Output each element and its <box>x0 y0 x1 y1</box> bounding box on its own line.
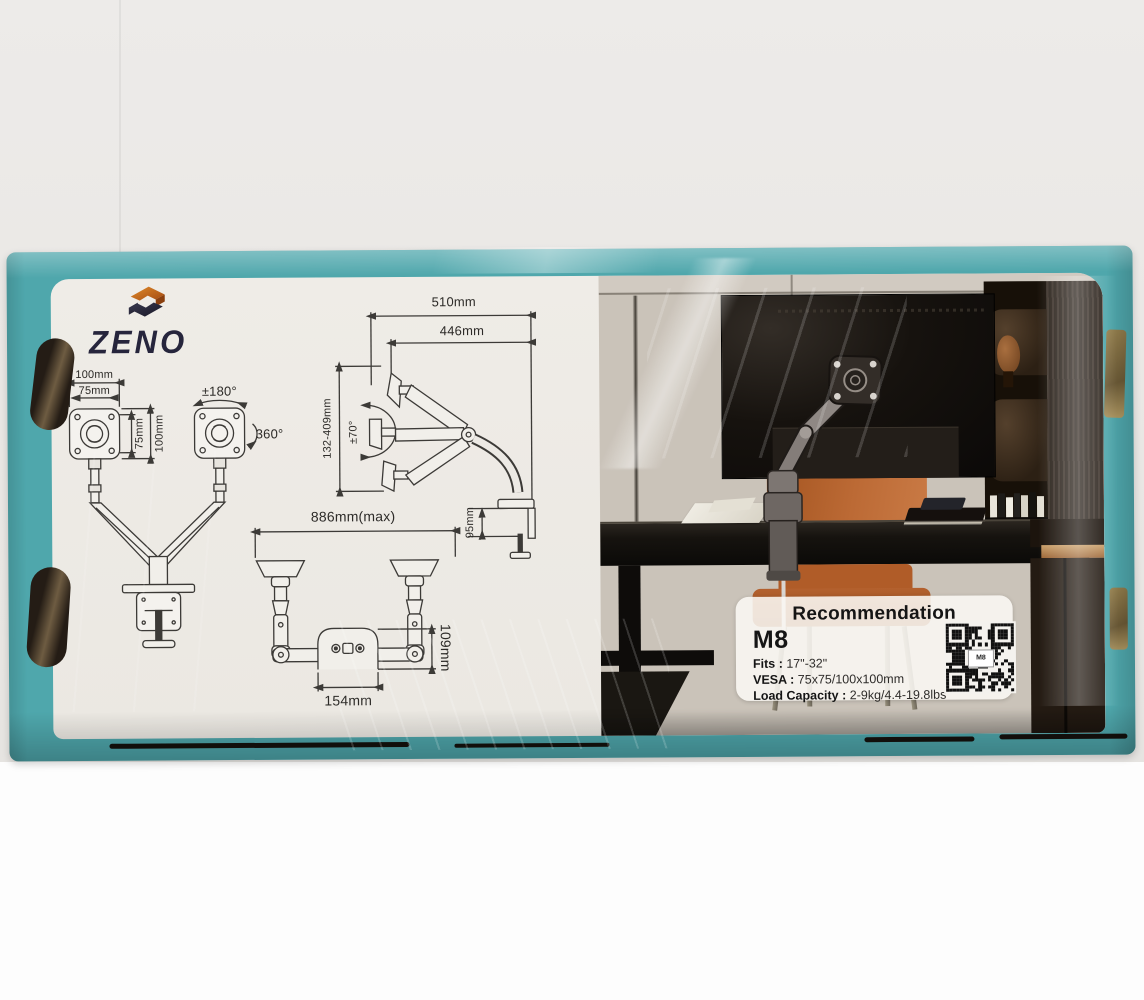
photo-backdrop-bottom <box>0 762 1144 1000</box>
product-box: ZENO <box>6 246 1135 762</box>
box-edge-shading <box>6 246 1135 762</box>
backdrop-crease <box>119 0 121 252</box>
